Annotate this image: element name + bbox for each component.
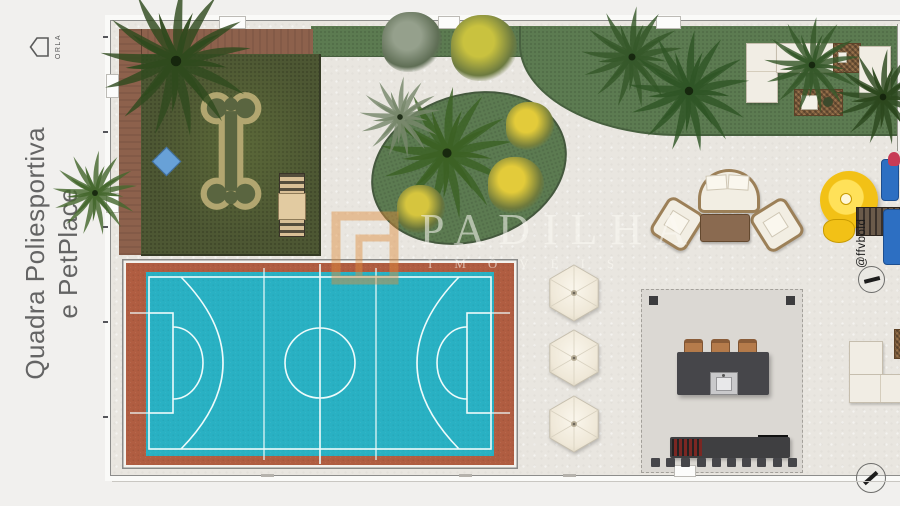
bar-stool <box>684 339 703 360</box>
section-marker <box>856 463 886 493</box>
boundary-tick <box>103 321 108 323</box>
boundary-dash <box>261 474 274 477</box>
l-sofa-chaise <box>849 374 900 403</box>
palm-tree <box>94 0 258 143</box>
armchair-right <box>748 195 807 255</box>
cushion-seam <box>880 375 881 402</box>
cushion <box>762 212 788 238</box>
faucet <box>722 374 725 377</box>
bush <box>488 157 544 213</box>
sectional-sofa-right-arm <box>859 46 891 98</box>
wall-opening <box>219 16 246 29</box>
sectional-sofa-top <box>776 43 835 73</box>
boundary-tick <box>103 36 108 38</box>
wicker-side-table <box>894 329 900 359</box>
pet-deck-left <box>119 29 142 255</box>
slide-base <box>823 219 855 243</box>
boundary-dash <box>563 474 576 477</box>
paver <box>727 458 736 467</box>
parasol-umbrella <box>545 264 603 322</box>
gourmet-kiosk <box>641 289 803 473</box>
site-plan-page: Quadra Poliesportiva e PetPlace ORLA <box>0 0 900 506</box>
orla-label: ORLA <box>55 34 62 59</box>
kiosk-counter <box>677 352 769 395</box>
cushion <box>706 174 728 190</box>
play-roof <box>888 152 900 166</box>
wall-opening <box>674 465 696 477</box>
paver <box>666 458 675 467</box>
sink <box>710 372 738 395</box>
pet-mat <box>152 147 182 177</box>
boundary-dash <box>459 474 472 477</box>
wicker-coffee-table <box>794 89 843 116</box>
spiral-slide <box>820 171 878 229</box>
section-marker <box>858 266 885 293</box>
paver <box>681 458 690 467</box>
pet-agility-platform <box>278 193 306 220</box>
parasol-umbrella <box>545 395 603 453</box>
cushion <box>663 210 689 236</box>
kiosk-post <box>649 296 658 305</box>
boundary-tick <box>103 226 108 228</box>
play-bridge <box>856 207 900 236</box>
lawn-top-right <box>519 26 900 136</box>
page-title: Quadra Poliesportiva e PetPlace <box>0 0 104 506</box>
orla-arrow-icon <box>27 34 53 60</box>
kiosk-post <box>786 296 795 305</box>
cushion <box>728 174 750 190</box>
bar-stool <box>738 339 757 360</box>
paver <box>757 458 766 467</box>
page-title-line2: e PetPlace <box>52 127 85 380</box>
palm-tree <box>49 147 141 239</box>
loveseat <box>698 169 760 213</box>
tray <box>801 95 818 110</box>
armchair-left <box>648 194 707 254</box>
l-sofa-corner <box>849 341 883 376</box>
grill-counter <box>670 437 790 458</box>
play-tower <box>881 159 899 201</box>
wall-opening <box>106 74 119 98</box>
wall-opening <box>106 193 119 213</box>
paver <box>712 458 721 467</box>
cushion-seam <box>805 44 806 72</box>
boundary-tick <box>103 131 108 133</box>
sectional-wicker-corner <box>833 43 861 73</box>
slide-center <box>840 193 852 205</box>
bush <box>451 15 517 81</box>
orla-direction-marker: ORLA <box>27 31 87 63</box>
paver <box>742 458 751 467</box>
boundary-line <box>112 481 900 482</box>
paver <box>788 458 797 467</box>
bar-stool <box>711 339 730 360</box>
paver <box>773 458 782 467</box>
garden-island <box>351 67 587 270</box>
court-lines <box>130 264 510 464</box>
page-title-line1: Quadra Poliesportiva <box>19 127 52 380</box>
palm-tree <box>356 73 444 161</box>
bush <box>382 12 442 72</box>
pet-deck-top <box>119 29 313 56</box>
petplace-lawn <box>141 54 321 256</box>
bone-path <box>193 84 269 218</box>
pet-agility-ramp <box>279 173 305 237</box>
barbecue-grill <box>672 439 702 456</box>
bush <box>506 102 554 150</box>
plant-pot <box>823 97 833 107</box>
palm-tree <box>577 2 687 112</box>
palm-tree <box>760 13 864 117</box>
counter-handle <box>758 435 788 437</box>
bush <box>397 185 445 233</box>
hedge-strip <box>311 26 900 57</box>
boundary-tick <box>103 416 108 418</box>
tray <box>838 52 847 63</box>
sink-basin <box>716 377 732 391</box>
parasol-umbrella <box>545 329 603 387</box>
wall-opening <box>438 16 460 29</box>
paver <box>651 458 660 467</box>
paver <box>697 458 706 467</box>
floor-plan <box>110 20 900 476</box>
palm-tree <box>831 45 900 149</box>
sectional-sofa-left-arm <box>746 43 778 103</box>
coffee-table <box>700 214 750 242</box>
play-tower <box>883 209 900 265</box>
palm-tree <box>623 25 755 157</box>
palm-tree <box>375 81 519 225</box>
sports-court <box>122 259 518 469</box>
wall-opening <box>656 16 681 29</box>
cushion-seam <box>747 71 777 72</box>
